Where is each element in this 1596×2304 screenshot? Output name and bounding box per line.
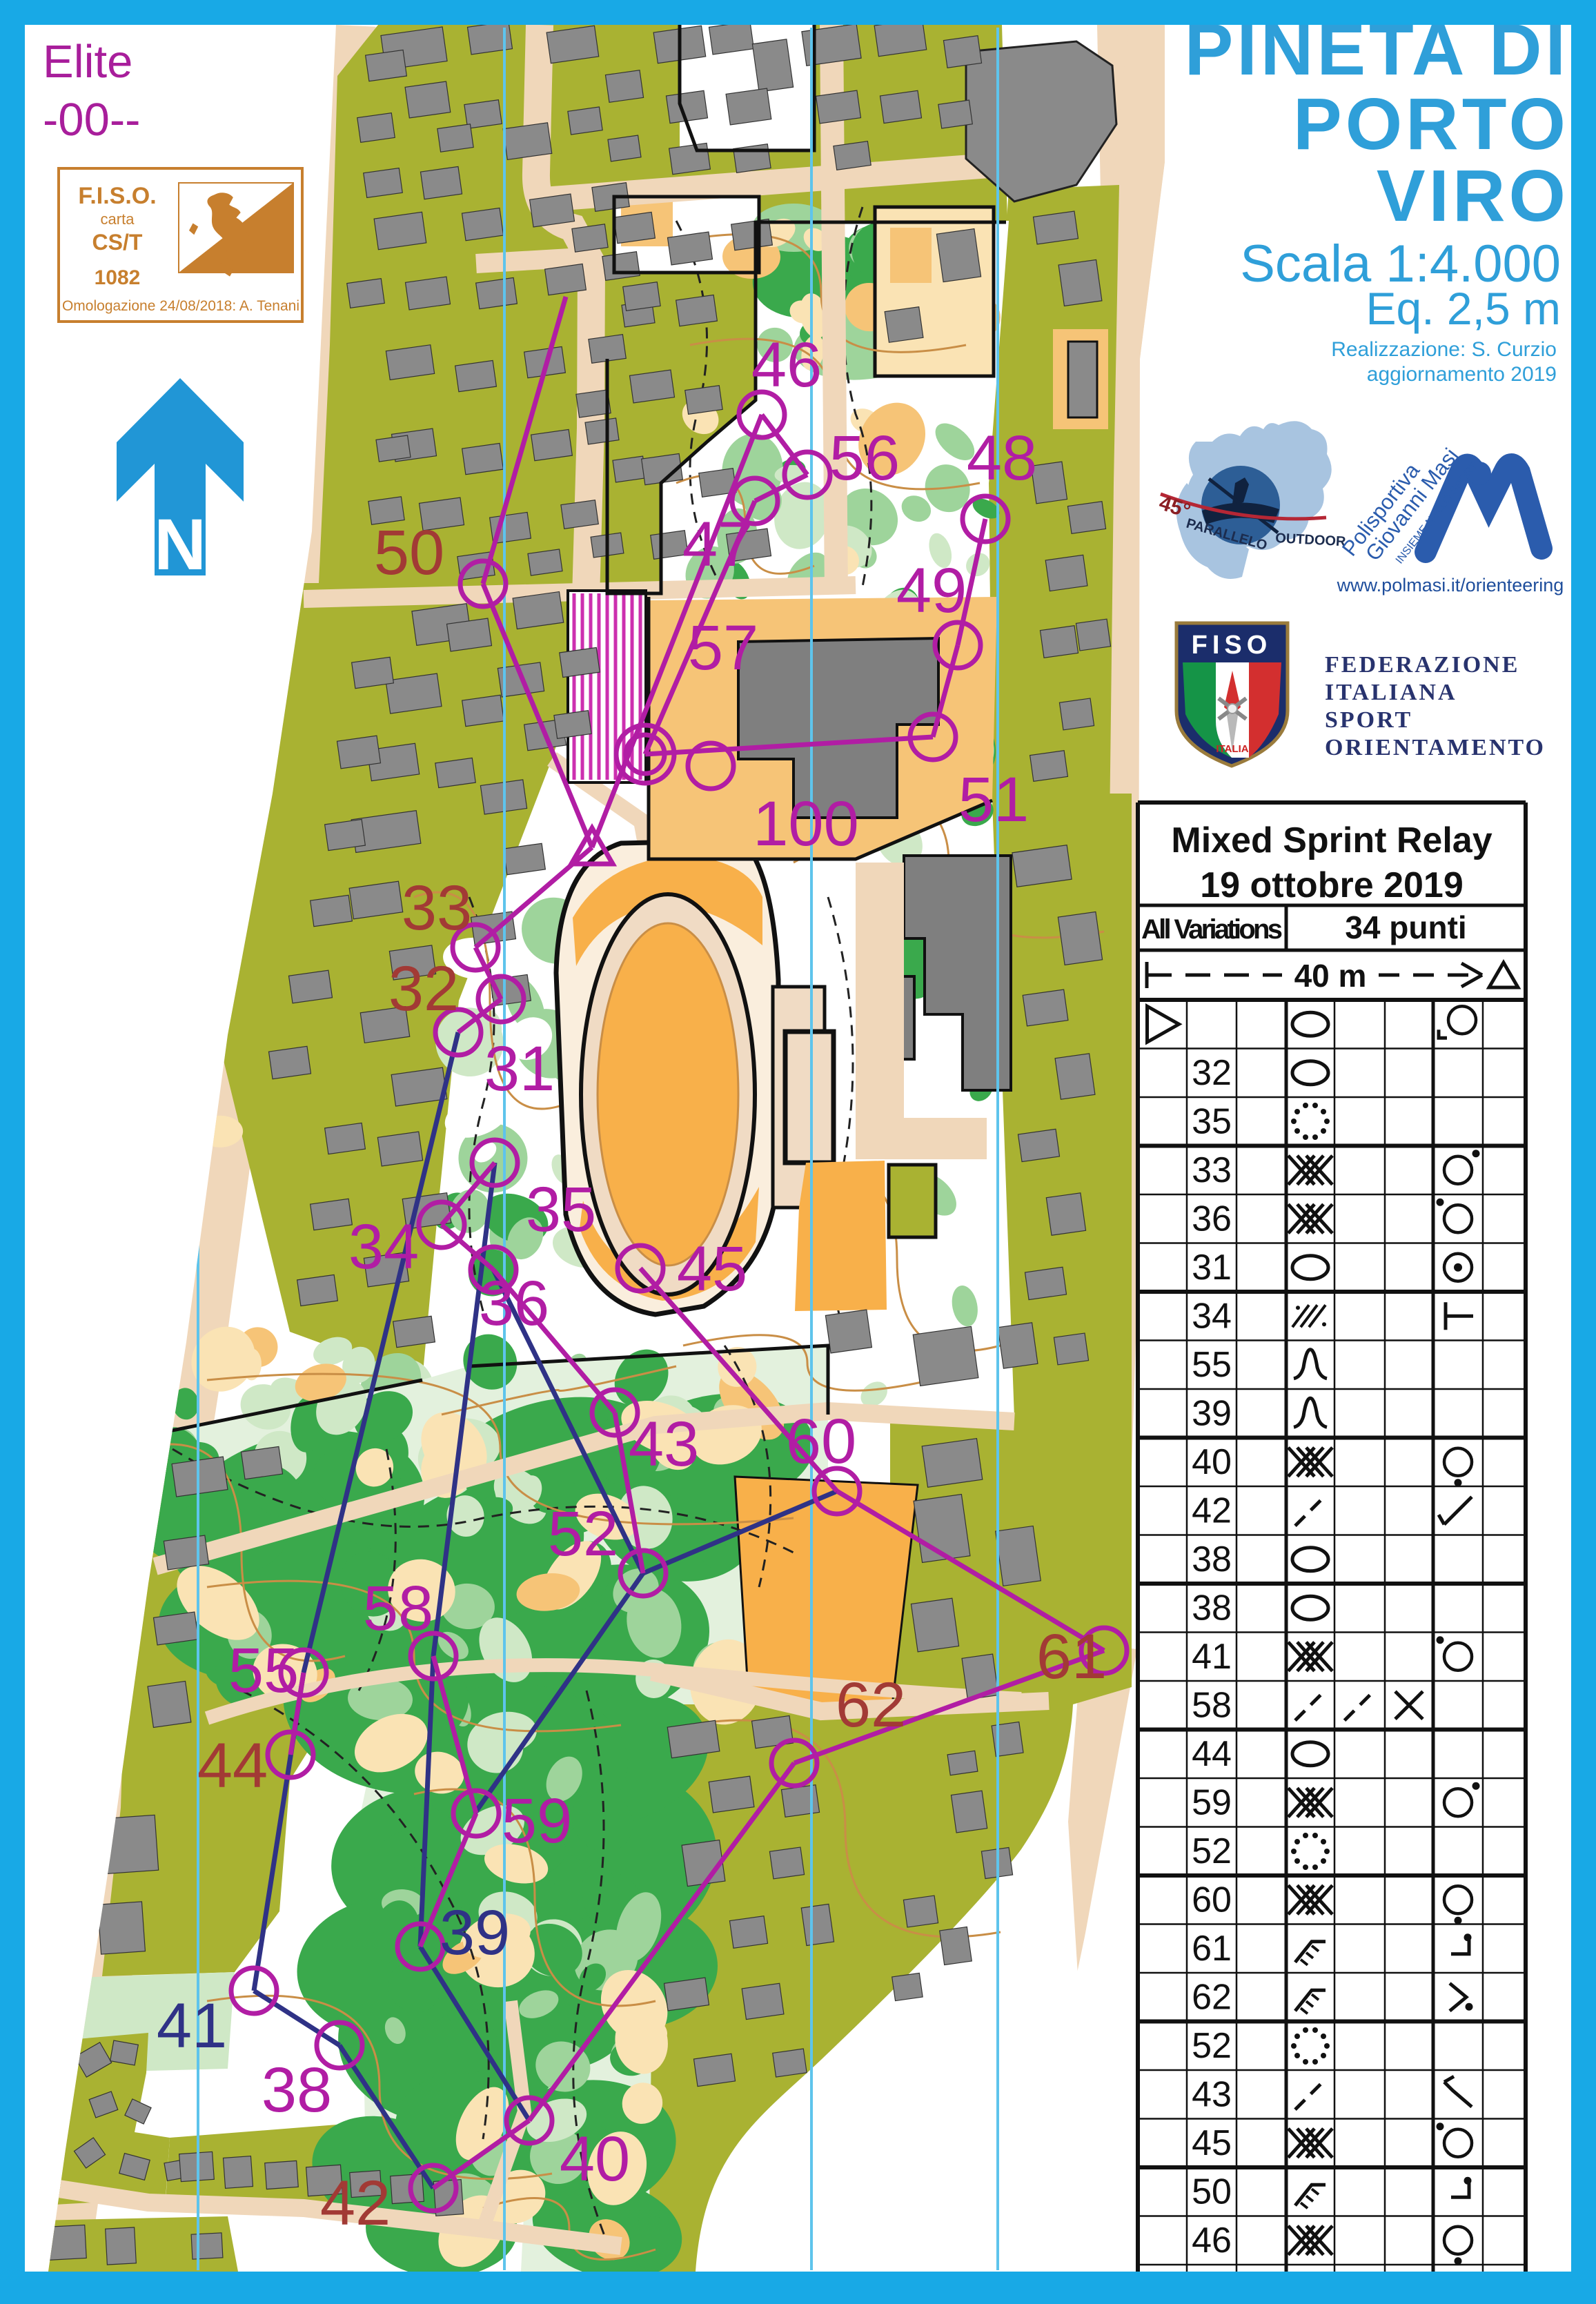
svg-text:FISO: FISO <box>1192 631 1272 660</box>
svg-text:43: 43 <box>629 1409 699 1479</box>
svg-text:59: 59 <box>1192 1782 1232 1822</box>
svg-text:31: 31 <box>484 1034 555 1104</box>
svg-text:40 m: 40 m <box>1294 958 1367 994</box>
svg-text:ITALIANA: ITALIANA <box>1325 680 1457 705</box>
svg-text:ORIENTAMENTO: ORIENTAMENTO <box>1325 735 1546 760</box>
svg-text:50: 50 <box>1192 2172 1232 2212</box>
svg-text:CS/T: CS/T <box>92 230 143 255</box>
svg-text:35: 35 <box>1192 1101 1232 1141</box>
svg-text:39: 39 <box>440 1898 510 1968</box>
svg-text:33: 33 <box>402 873 472 943</box>
svg-text:43: 43 <box>1192 2074 1232 2114</box>
svg-text:34 punti: 34 punti <box>1345 909 1466 945</box>
svg-text:58: 58 <box>1192 1685 1232 1725</box>
svg-text:44: 44 <box>1192 1734 1232 1774</box>
svg-text:56: 56 <box>829 423 900 493</box>
svg-text:32: 32 <box>1192 1053 1232 1093</box>
svg-text:51: 51 <box>958 765 1029 835</box>
svg-text:F.I.S.O.: F.I.S.O. <box>78 183 156 209</box>
svg-text:Omologazione 24/08/2018: A. Te: Omologazione 24/08/2018: A. Tenani <box>62 298 299 314</box>
svg-text:59: 59 <box>502 1786 572 1856</box>
svg-text:33: 33 <box>1192 1150 1232 1190</box>
svg-text:ITALIA: ITALIA <box>1216 743 1248 755</box>
svg-text:FEDERAZIONE: FEDERAZIONE <box>1325 652 1519 678</box>
svg-text:PORTO: PORTO <box>1293 83 1569 165</box>
svg-text:49: 49 <box>896 555 967 626</box>
svg-text:40: 40 <box>1192 1442 1232 1482</box>
svg-text:VIRO: VIRO <box>1377 155 1569 237</box>
svg-text:52: 52 <box>1192 1831 1232 1871</box>
svg-text:31: 31 <box>1192 1248 1232 1288</box>
svg-text:52: 52 <box>548 1499 618 1569</box>
svg-text:SPORT: SPORT <box>1325 707 1412 733</box>
svg-text:61: 61 <box>1036 1622 1107 1692</box>
svg-text:N: N <box>154 504 206 585</box>
svg-text:55: 55 <box>228 1635 299 1706</box>
svg-text:48: 48 <box>967 423 1037 493</box>
svg-text:45: 45 <box>677 1234 747 1304</box>
svg-text:Elite: Elite <box>43 36 132 88</box>
svg-text:58: 58 <box>363 1573 433 1644</box>
svg-text:-00--: -00-- <box>43 94 140 146</box>
svg-text:60: 60 <box>786 1406 856 1477</box>
svg-text:35: 35 <box>526 1174 596 1245</box>
svg-text:38: 38 <box>1192 1539 1232 1579</box>
svg-text:52: 52 <box>1192 2026 1232 2066</box>
svg-text:www.polmasi.it/orienteering: www.polmasi.it/orienteering <box>1337 575 1564 595</box>
svg-text:32: 32 <box>388 954 459 1024</box>
svg-text:All Variations: All Variations <box>1141 914 1283 945</box>
svg-text:46: 46 <box>751 330 822 400</box>
svg-text:61: 61 <box>1192 1929 1232 1969</box>
svg-text:Mixed Sprint Relay: Mixed Sprint Relay <box>1171 820 1492 860</box>
svg-text:60: 60 <box>1192 1880 1232 1920</box>
svg-text:46: 46 <box>1192 2221 1232 2261</box>
svg-text:38: 38 <box>262 2055 332 2125</box>
svg-text:aggiornamento 2019: aggiornamento 2019 <box>1367 363 1557 386</box>
svg-text:57: 57 <box>688 613 758 683</box>
svg-text:44: 44 <box>197 1731 268 1801</box>
svg-text:Eq. 2,5 m: Eq. 2,5 m <box>1366 283 1561 334</box>
svg-text:36: 36 <box>1192 1199 1232 1239</box>
svg-text:55: 55 <box>1192 1345 1232 1385</box>
svg-text:45: 45 <box>1192 2123 1232 2163</box>
svg-text:50: 50 <box>374 518 444 588</box>
svg-text:41: 41 <box>1192 1637 1232 1677</box>
svg-text:62: 62 <box>1192 1977 1232 2017</box>
svg-text:62: 62 <box>836 1670 906 1740</box>
svg-text:1082: 1082 <box>95 266 141 289</box>
svg-text:34: 34 <box>1192 1296 1232 1336</box>
svg-text:36: 36 <box>479 1268 549 1339</box>
svg-text:38: 38 <box>1192 1588 1232 1628</box>
svg-text:47: 47 <box>682 509 753 580</box>
svg-text:100: 100 <box>753 789 859 859</box>
svg-text:40: 40 <box>560 2124 630 2194</box>
svg-text:Realizzazione: S. Curzio: Realizzazione: S. Curzio <box>1331 338 1557 361</box>
svg-text:42: 42 <box>320 2168 391 2238</box>
svg-text:39: 39 <box>1192 1393 1232 1433</box>
svg-text:41: 41 <box>157 1991 227 2061</box>
svg-text:19 ottobre 2019: 19 ottobre 2019 <box>1200 865 1464 905</box>
svg-text:carta: carta <box>101 210 135 228</box>
svg-text:42: 42 <box>1192 1490 1232 1530</box>
svg-text:34: 34 <box>348 1212 419 1282</box>
svg-text:OUTDOOR: OUTDOOR <box>1275 531 1347 549</box>
